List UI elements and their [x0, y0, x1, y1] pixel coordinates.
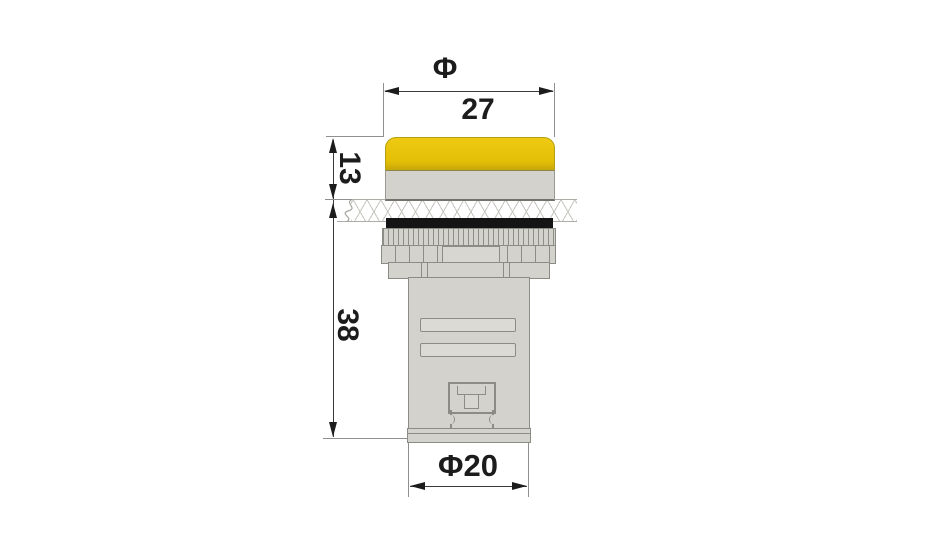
label-diameter-symbol: Φ: [425, 54, 465, 84]
base-flange: [407, 428, 531, 443]
terminal-pin: [464, 394, 479, 409]
collar-seam: [421, 263, 428, 278]
dimension-arrow-icon: [329, 203, 337, 218]
indicator-head-base: [385, 170, 555, 201]
extension-line: [323, 438, 408, 439]
crimp-notch: [448, 415, 455, 424]
flange-seam: [408, 433, 530, 434]
dimension-arrow-icon: [329, 422, 337, 437]
dimension-arrow-icon: [410, 482, 425, 490]
label-head-height: 13: [334, 138, 364, 198]
dimension-arrow-icon: [512, 482, 527, 490]
vent-slot: [420, 318, 516, 332]
mounting-nut-flat: [442, 246, 500, 263]
label-body-diameter: Φ20: [428, 451, 508, 481]
dimension-arrow-icon: [539, 87, 554, 95]
dimension-arrow-icon: [384, 87, 399, 95]
dimension-line-body-diameter: [410, 486, 527, 487]
extension-line: [528, 443, 529, 497]
extension-line: [325, 199, 352, 200]
label-body-length: 38: [332, 295, 362, 355]
extension-line: [408, 443, 409, 497]
indicator-lens-cap: [385, 137, 555, 171]
extension-line: [554, 83, 555, 137]
label-head-diameter: 27: [448, 95, 508, 125]
crimp-notch: [489, 415, 496, 424]
lamp-body: [408, 277, 530, 430]
dimension-line-head-diameter: [385, 91, 553, 92]
panel-break-line-icon: [339, 199, 361, 222]
extension-line: [326, 136, 384, 137]
vent-slot: [420, 343, 516, 357]
sealing-gasket: [386, 218, 553, 228]
technical-drawing-canvas: Φ 27 13 38 Φ20: [0, 0, 930, 550]
terminal-crimp: [450, 410, 494, 429]
collar-seam: [503, 263, 510, 278]
